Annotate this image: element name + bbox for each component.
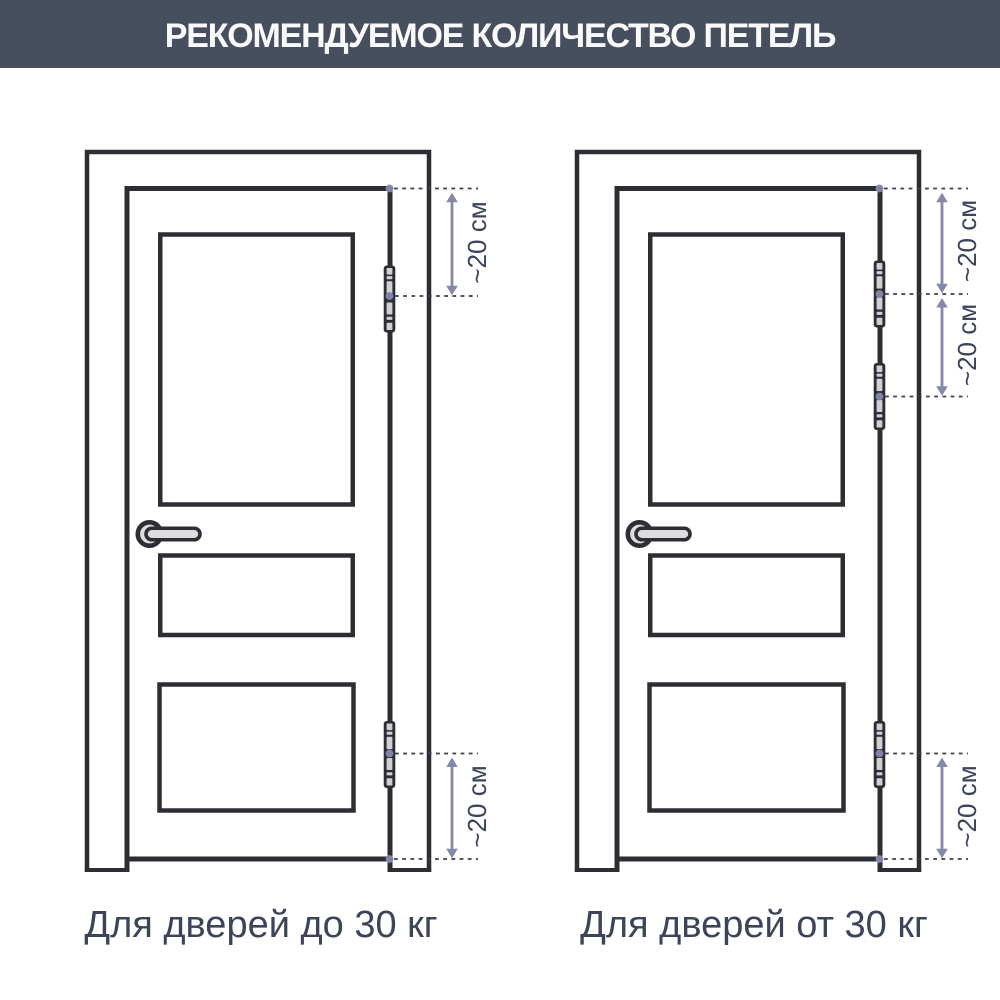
svg-text:РЕКОМЕНДУЕМОЕ КОЛИЧЕСТВО ПЕТЕЛ: РЕКОМЕНДУЕМОЕ КОЛИЧЕСТВО ПЕТЕЛЬ [165, 17, 836, 55]
svg-text:~20 см: ~20 см [952, 200, 982, 282]
svg-text:Для дверей до 30 кг: Для дверей до 30 кг [84, 904, 437, 946]
svg-text:~20 см: ~20 см [952, 304, 982, 386]
svg-text:Для дверей от 30 кг: Для дверей от 30 кг [580, 904, 928, 946]
svg-text:~20 см: ~20 см [462, 201, 492, 283]
svg-text:~20 см: ~20 см [462, 765, 492, 847]
svg-text:~20 см: ~20 см [952, 765, 982, 847]
